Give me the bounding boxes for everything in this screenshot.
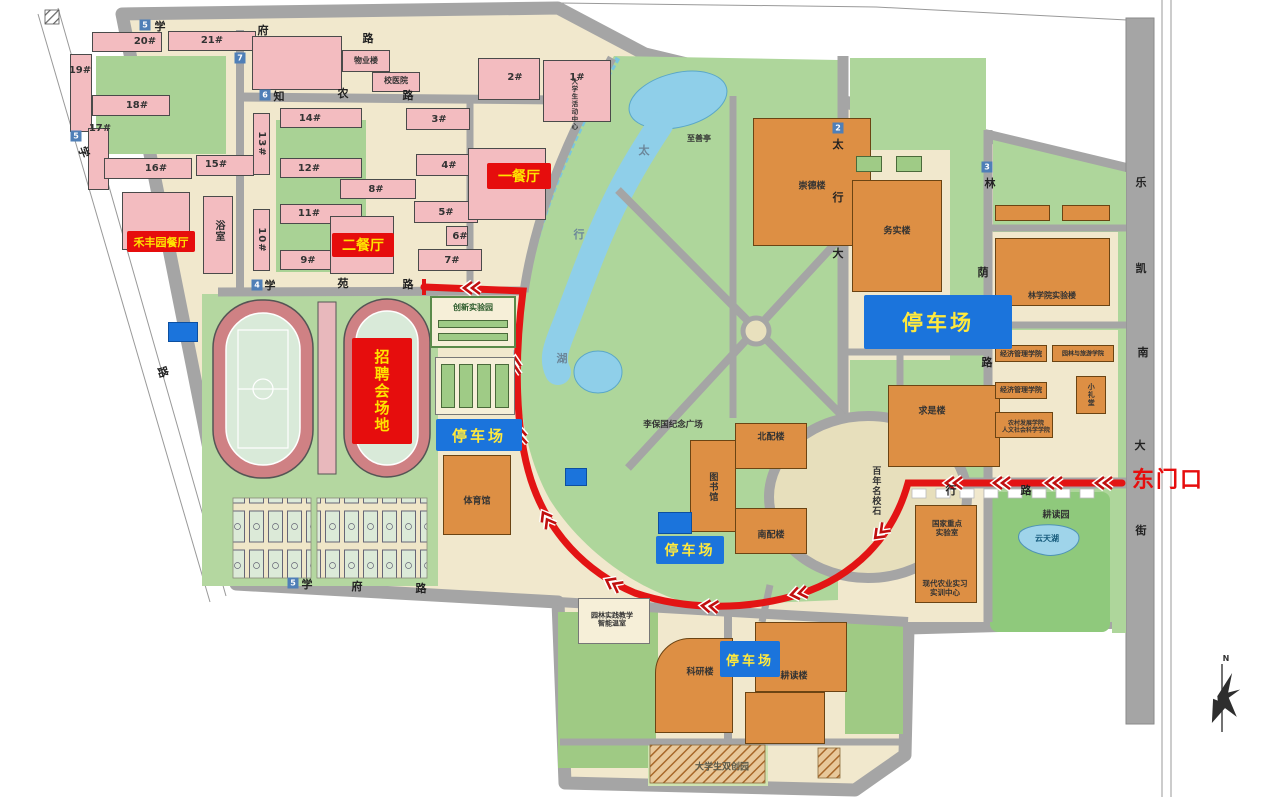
street-xuefu-top-3: 路 <box>363 30 374 46</box>
nongcun-renwen-label: 农村发展学院 人文社会科学学院 <box>1002 420 1050 434</box>
dorm-18-label: 18# <box>126 100 148 112</box>
gym-court <box>477 364 491 408</box>
dorm-12-label: 12# <box>298 163 320 175</box>
chongde-label: 崇德楼 <box>798 182 825 193</box>
hatch-small <box>818 748 840 778</box>
street-xuefu-bottom-2: 府 <box>352 578 363 594</box>
wuye-label: 物业楼 <box>354 56 378 66</box>
street-eastgate-2: 路 <box>1021 482 1032 498</box>
activity-center-label: 大学生活动中心 <box>569 78 577 131</box>
keyan-label: 科研楼 <box>686 668 713 679</box>
street-zhinong-1: 知 <box>274 88 285 104</box>
street-taihang-2: 行 <box>833 189 844 205</box>
stadium-west <box>213 300 313 478</box>
xiaoyiyuan-label: 校医院 <box>384 76 408 86</box>
street-xuefu-top-1: 学 <box>155 18 166 34</box>
street-lekai-2: 凯 <box>1136 260 1147 276</box>
dorm-20-label: 20# <box>134 36 156 48</box>
bainian-label: 百年名校石 <box>870 466 881 516</box>
dorm-3-label: 3# <box>431 114 446 126</box>
street-lekai-1: 乐 <box>1136 174 1147 190</box>
road-marker-5-bottom: 5 <box>288 578 299 589</box>
tiyuguan-label: 体育馆 <box>463 497 490 508</box>
gengduyuan-label: 耕读园 <box>1042 511 1069 522</box>
beipeilou-label: 北配楼 <box>757 433 784 444</box>
dorm-15-label: 15# <box>205 159 227 171</box>
street-xueyuan-2: 苑 <box>338 275 349 291</box>
street-eastgate-1: 行 <box>946 482 957 498</box>
dongmenkou-label: 东门口 <box>1132 468 1204 494</box>
road-marker-3: 3 <box>982 162 993 173</box>
gengdulou-label: 耕读楼 <box>780 672 807 683</box>
dorm-13-label: 13# <box>255 131 267 156</box>
gym-court <box>495 364 509 408</box>
street-xueyuan-1: 学 <box>265 277 276 293</box>
building-courtyard-hall <box>252 36 342 90</box>
dorm-4-label: 4# <box>441 160 456 172</box>
parking-sign-east: 停车场 <box>864 295 1012 349</box>
dorm-6-label: 6# <box>452 231 467 243</box>
qiushi-label: 求是楼 <box>918 407 945 418</box>
parking-sign-center: 停车场 <box>656 536 724 564</box>
xiaolitang-label: 小礼堂 <box>1087 383 1095 407</box>
street-lekai-5: 街 <box>1136 522 1147 538</box>
libaoguo-label: 李保国纪念广场 <box>643 420 703 430</box>
street-zhinong-3: 路 <box>403 87 414 103</box>
wushi-label: 务实楼 <box>883 227 910 238</box>
dorm-8-label: 8# <box>368 184 383 196</box>
dorm-16-label: 16# <box>145 163 167 175</box>
building-qiushi <box>888 385 1000 467</box>
parking-pad <box>658 512 692 534</box>
road-marker-5-west: 5 <box>71 131 82 142</box>
street-lekai-3: 南 <box>1138 344 1149 360</box>
chuangxin-label: 创新实验园 <box>453 303 493 313</box>
road-marker-2: 2 <box>833 123 844 134</box>
parking-pad <box>565 468 587 486</box>
park-path-circle <box>743 318 769 344</box>
compass-n-label: N <box>1223 654 1230 664</box>
chuangxin-bar <box>438 333 508 341</box>
ercanting-sign: 二餐厅 <box>332 233 394 257</box>
road-marker-6: 6 <box>260 90 271 101</box>
building-tiyuguan <box>443 455 511 535</box>
chuangxin-bar <box>438 320 508 328</box>
zhishanting-label: 至善亭 <box>687 134 711 144</box>
guozhong-label: 国家重点 实验室 <box>932 519 962 537</box>
corner-hatch <box>45 10 59 24</box>
stadium-stands <box>318 302 336 474</box>
lake-char-2: 行 <box>574 226 585 242</box>
gym-court <box>459 364 473 408</box>
campus-map: 禾丰园餐厅 二餐厅 一餐厅 招聘会场地 停车场 停车场 停车场 停车场 东门口 … <box>0 0 1280 797</box>
building-slab-a <box>995 205 1050 221</box>
dorm-9-label: 9# <box>300 255 315 267</box>
street-taihang-3: 大 <box>833 245 844 261</box>
building-gengdulou-south <box>745 692 825 744</box>
parking-sign-south: 停车场 <box>720 641 780 677</box>
street-xuefu-top-2: 府 <box>258 22 269 38</box>
building-beipeilou <box>735 423 807 469</box>
dorm-19-label: 19# <box>69 65 91 77</box>
building-slab-b <box>1062 205 1110 221</box>
dorm-2-label: 2# <box>507 72 522 84</box>
yuanlin-shijian-label: 园林实践教学 智能温室 <box>591 612 633 629</box>
basketball-courts <box>233 498 427 578</box>
lake-char-1: 太 <box>639 142 650 158</box>
parking-sign-track: 停车场 <box>436 419 522 451</box>
hefengyuan-sign: 禾丰园餐厅 <box>127 231 195 252</box>
shuangchuang-label: 大学生双创园 <box>695 763 749 774</box>
road-marker-7: 7 <box>235 53 246 64</box>
linxueyuan-label: 林学院实验楼 <box>1028 291 1076 301</box>
greenhouse-icon <box>896 156 922 172</box>
street-linyin-1: 林 <box>985 175 996 191</box>
street-lekai-4: 大 <box>1135 437 1146 453</box>
dorm-7-label: 7# <box>444 255 459 267</box>
xiandai-nongye-label: 现代农业实习 实训中心 <box>923 579 968 597</box>
dorm-10-label: 10# <box>255 227 267 252</box>
jingguan-1-label: 经济管理学院 <box>1000 350 1042 358</box>
dorm-17-label: 17# <box>89 123 111 135</box>
street-zhinong-2: 农 <box>338 85 349 101</box>
street-linyin-2: 荫 <box>978 264 989 280</box>
street-taihang-1: 太 <box>833 136 844 152</box>
building-dorm-12 <box>280 158 362 178</box>
tushuguan-label: 图书馆 <box>707 472 718 502</box>
yuntianhu-label: 云天湖 <box>1035 534 1059 544</box>
street-xuefu-bottom-1: 学 <box>302 576 313 592</box>
lake-char-3: 湖 <box>557 350 568 366</box>
street-xuefu-bottom-3: 路 <box>416 580 427 596</box>
parking-pad <box>168 322 198 342</box>
nanpeilou-label: 南配楼 <box>757 531 784 542</box>
yuanlin-lvyou-label: 园林与旅游学院 <box>1062 350 1104 357</box>
greenhouse-icon <box>856 156 882 172</box>
lekai-street-road <box>1126 18 1154 724</box>
dorm-11-label: 11# <box>298 208 320 220</box>
gym-court <box>441 364 455 408</box>
dorm-5-label: 5# <box>438 207 453 219</box>
jingguan-2-label: 经济管理学院 <box>1000 386 1042 394</box>
street-xueyuan-3: 路 <box>403 276 414 292</box>
compass-icon <box>1204 664 1241 732</box>
yicanting-sign: 一餐厅 <box>487 163 551 189</box>
road-marker-5-top: 5 <box>140 20 151 31</box>
dorm-14-label: 14# <box>299 113 321 125</box>
street-linyin-3: 路 <box>982 354 993 370</box>
zhaopin-banner: 招聘会场地 <box>352 338 412 444</box>
road-marker-4: 4 <box>252 280 263 291</box>
dorm-21-label: 21# <box>201 35 223 47</box>
yushi-label: 浴室 <box>212 220 224 242</box>
